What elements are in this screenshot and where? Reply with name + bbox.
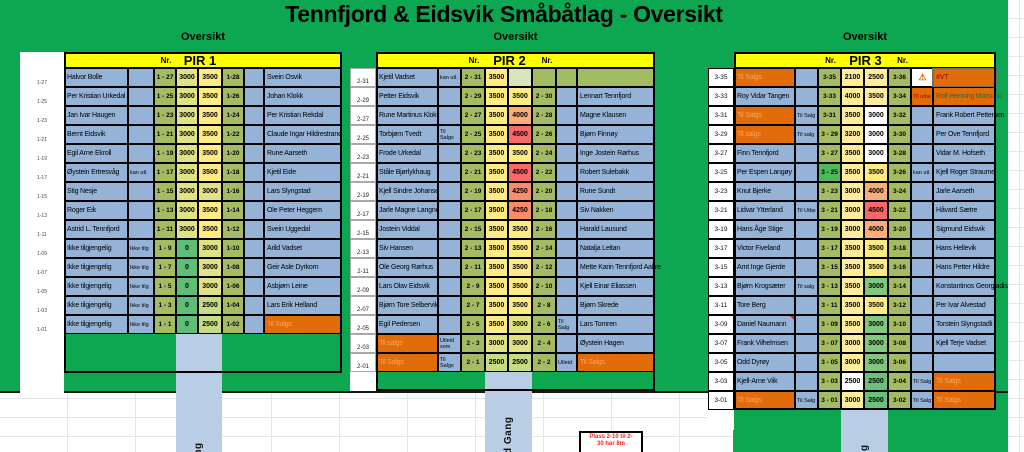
berth-code-right[interactable]: 1-04 xyxy=(222,296,244,315)
owner-name-right[interactable]: Natalja Leitan xyxy=(577,239,655,258)
price-cell-1[interactable]: 3500 xyxy=(485,296,508,315)
status-note-left[interactable] xyxy=(795,163,818,182)
owner-name-left[interactable]: Til Salgs xyxy=(376,353,438,372)
berth-code-right[interactable]: 1-10 xyxy=(222,239,244,258)
berth-code-right[interactable]: 2 - 2 xyxy=(532,353,556,372)
berth-code-left[interactable]: 1 - 17 xyxy=(154,163,176,182)
owner-name-right[interactable]: Per Ivar Alvestad xyxy=(933,296,996,315)
owner-name-right[interactable]: Per Kristian Rekdal xyxy=(264,106,342,125)
price-cell-2[interactable]: 3500 xyxy=(508,87,532,106)
owner-name-right[interactable]: Bjørn Finnøy xyxy=(577,125,655,144)
price-cell-1[interactable]: 3500 xyxy=(841,163,864,182)
berth-code-right[interactable]: 3-06 xyxy=(888,353,911,372)
price-cell-2[interactable]: 4500 xyxy=(508,163,532,182)
owner-name-right[interactable]: Inge Jostein Rørhus xyxy=(577,144,655,163)
owner-name-left[interactable]: Egil Arne Ekroll xyxy=(64,144,128,163)
price-cell-1[interactable]: 0 xyxy=(176,277,198,296)
price-cell-1[interactable]: 3000 xyxy=(176,125,198,144)
price-cell-1[interactable]: 3000 xyxy=(485,334,508,353)
berth-code-right[interactable]: 3-08 xyxy=(888,334,911,353)
berth-code-left[interactable]: 2 - 27 xyxy=(461,106,485,125)
price-cell-1[interactable]: 3000 xyxy=(841,201,864,220)
status-note-left[interactable] xyxy=(128,106,154,125)
status-note-right[interactable]: Til Salg xyxy=(911,372,933,391)
berth-code-right[interactable]: 1-20 xyxy=(222,144,244,163)
status-note-left[interactable] xyxy=(795,296,818,315)
berth-code-left[interactable]: 1 - 13 xyxy=(154,201,176,220)
berth-code-right[interactable]: 3-22 xyxy=(888,201,911,220)
owner-name-left[interactable]: Rune Martinus Klokseth xyxy=(376,106,438,125)
price-cell-2[interactable]: 3500 xyxy=(198,106,222,125)
owner-name-right[interactable]: Robert Sulebakk xyxy=(577,163,655,182)
price-cell-2[interactable]: 3500 xyxy=(198,87,222,106)
owner-name-left[interactable]: Kjetil Vadset xyxy=(376,68,438,87)
status-note-left[interactable] xyxy=(128,87,154,106)
berth-code-right[interactable]: 3-14 xyxy=(888,277,911,296)
price-cell-2[interactable]: 3500 xyxy=(198,220,222,239)
status-note-right[interactable] xyxy=(556,277,577,296)
owner-name-left[interactable]: Bjørn Krogsæter xyxy=(734,277,795,296)
owner-name-right[interactable]: Kjetil Eide xyxy=(264,163,342,182)
owner-name-left[interactable]: Astrid L. Tennfjord xyxy=(64,220,128,239)
warning-icon[interactable]: ⚠ xyxy=(918,73,926,82)
price-cell-2[interactable]: 3000 xyxy=(198,182,222,201)
price-cell-2[interactable]: 2500 xyxy=(864,391,888,410)
berth-code-right[interactable]: 2 - 8 xyxy=(532,296,556,315)
status-note-right[interactable] xyxy=(556,144,577,163)
price-cell-2[interactable]: 3000 xyxy=(864,125,888,144)
price-cell-1[interactable]: 3500 xyxy=(841,144,864,163)
status-note-right[interactable] xyxy=(244,163,264,182)
price-cell-1[interactable]: 3500 xyxy=(485,239,508,258)
status-note-right[interactable] xyxy=(556,334,577,353)
price-cell-2[interactable]: 2500 xyxy=(864,372,888,391)
berth-code-right[interactable]: 1-22 xyxy=(222,125,244,144)
price-cell-1[interactable]: 4000 xyxy=(841,87,864,106)
berth-code-right[interactable]: 3-30 xyxy=(888,125,911,144)
status-note-right[interactable]: ⚠ xyxy=(911,68,933,87)
berth-code-left[interactable]: 1 - 25 xyxy=(154,87,176,106)
berth-code-right[interactable]: 3-02 xyxy=(888,391,911,410)
owner-name-right[interactable]: Bjørn Skrede xyxy=(577,296,655,315)
status-note-right[interactable] xyxy=(911,220,933,239)
berth-code-left[interactable]: 3 - 15 xyxy=(818,258,841,277)
owner-name-right[interactable]: Lars Slyngstad xyxy=(264,182,342,201)
price-cell-2[interactable]: 4500 xyxy=(508,125,532,144)
berth-code-left[interactable]: 1 - 9 xyxy=(154,239,176,258)
berth-code-left[interactable]: 1 - 5 xyxy=(154,277,176,296)
berth-code-left[interactable]: 3 - 05 xyxy=(818,353,841,372)
berth-code-left[interactable]: 2 - 3 xyxy=(461,334,485,353)
status-note-left[interactable] xyxy=(795,239,818,258)
status-note-left[interactable]: Til Salgs xyxy=(438,125,461,144)
owner-name-left[interactable]: Lars Olav Eidsvik xyxy=(376,277,438,296)
status-note-right[interactable] xyxy=(911,353,933,372)
price-cell-2[interactable]: 3500 xyxy=(508,239,532,258)
berth-code-right[interactable]: 1-02 xyxy=(222,315,244,334)
price-cell-1[interactable]: 3000 xyxy=(841,220,864,239)
status-note-right[interactable] xyxy=(911,296,933,315)
price-cell-1[interactable]: 3000 xyxy=(176,144,198,163)
berth-code-left[interactable]: 1 - 3 xyxy=(154,296,176,315)
price-cell-2[interactable]: 3500 xyxy=(508,144,532,163)
price-cell-1[interactable]: 2100 xyxy=(841,68,864,87)
price-cell-2[interactable]: 3000 xyxy=(508,315,532,334)
berth-code-left[interactable]: 2 - 19 xyxy=(461,182,485,201)
price-cell-1[interactable]: 3500 xyxy=(841,315,864,334)
price-cell-1[interactable]: 3000 xyxy=(176,87,198,106)
berth-code-right[interactable]: 1-18 xyxy=(222,163,244,182)
price-cell-2[interactable]: 3500 xyxy=(198,144,222,163)
price-cell-2[interactable]: 4250 xyxy=(508,182,532,201)
status-note-left[interactable] xyxy=(795,182,818,201)
price-cell-2[interactable]: 3000 xyxy=(198,258,222,277)
owner-name-right[interactable]: Til Salgs xyxy=(933,391,996,410)
status-note-right[interactable] xyxy=(556,182,577,201)
price-cell-2[interactable]: 3000 xyxy=(198,277,222,296)
owner-name-right[interactable]: Ole Peter Heggem xyxy=(264,201,342,220)
berth-code-right[interactable]: 2 - 10 xyxy=(532,277,556,296)
berth-code-right[interactable]: 3-24 xyxy=(888,182,911,201)
price-cell-2[interactable]: 3000 xyxy=(864,144,888,163)
berth-code-right[interactable] xyxy=(532,68,556,87)
berth-code-right[interactable]: 3-12 xyxy=(888,296,911,315)
status-note-left[interactable]: Til Salgs xyxy=(438,353,461,372)
status-note-left[interactable]: Ikke tilg xyxy=(128,277,154,296)
owner-name-left[interactable]: Ikke tilgjengelig xyxy=(64,277,128,296)
price-cell-1[interactable]: 3500 xyxy=(485,315,508,334)
owner-name-left[interactable]: Arnt Inge Gjerde xyxy=(734,258,795,277)
status-note-left[interactable] xyxy=(438,87,461,106)
owner-name-left[interactable]: Halvor Bolle xyxy=(64,68,128,87)
price-cell-1[interactable]: 3500 xyxy=(485,182,508,201)
price-cell-1[interactable]: 3500 xyxy=(485,258,508,277)
berth-code-right[interactable]: 3-04 xyxy=(888,372,911,391)
status-note-right[interactable] xyxy=(911,182,933,201)
status-note-right[interactable]: kan utl. xyxy=(911,163,933,182)
price-cell-2[interactable]: 3000 xyxy=(864,106,888,125)
owner-name-right[interactable]: Siv Nakken xyxy=(577,201,655,220)
berth-code-right[interactable]: 3-32 xyxy=(888,106,911,125)
status-note-left[interactable] xyxy=(438,201,461,220)
price-cell-1[interactable]: 2500 xyxy=(485,353,508,372)
price-cell-2[interactable]: 3500 xyxy=(864,258,888,277)
berth-code-left[interactable]: 1 - 23 xyxy=(154,106,176,125)
price-cell-1[interactable]: 3000 xyxy=(176,220,198,239)
price-cell-1[interactable]: 3000 xyxy=(176,68,198,87)
price-cell-2[interactable]: 3000 xyxy=(864,277,888,296)
owner-name-right[interactable]: Magne Klausen xyxy=(577,106,655,125)
price-cell-2[interactable]: 3500 xyxy=(508,220,532,239)
berth-code-left[interactable]: 1 - 15 xyxy=(154,182,176,201)
status-note-left[interactable]: Ikke tilg xyxy=(128,296,154,315)
owner-name-left[interactable]: Per Kristian Urkedal xyxy=(64,87,128,106)
price-cell-2[interactable]: 3000 xyxy=(198,239,222,258)
berth-code-left[interactable]: 1 - 27 xyxy=(154,68,176,87)
status-note-right[interactable] xyxy=(556,296,577,315)
berth-code-right[interactable]: 3-16 xyxy=(888,258,911,277)
berth-code-right[interactable]: 1-12 xyxy=(222,220,244,239)
price-cell-1[interactable]: 3000 xyxy=(841,391,864,410)
status-note-right[interactable] xyxy=(556,125,577,144)
berth-code-left[interactable]: 1 - 19 xyxy=(154,144,176,163)
price-cell-2[interactable]: 4000 xyxy=(864,182,888,201)
berth-code-right[interactable]: 2 - 6 xyxy=(532,315,556,334)
berth-code-left[interactable]: 2 - 11 xyxy=(461,258,485,277)
status-note-right[interactable]: Utleid xyxy=(556,353,577,372)
berth-code-left[interactable]: 3 - 25 xyxy=(818,163,841,182)
status-note-right[interactable] xyxy=(244,220,264,239)
owner-name-right[interactable]: Sigmund Eidsvik xyxy=(933,220,996,239)
owner-name-left[interactable]: Frode Urkedal xyxy=(376,144,438,163)
price-cell-2[interactable] xyxy=(508,68,532,87)
status-note-left[interactable]: Ikke tilg xyxy=(128,315,154,334)
status-note-left[interactable]: Til salg xyxy=(795,277,818,296)
owner-name-left[interactable]: Per Espen Langøy xyxy=(734,163,795,182)
owner-name-right[interactable]: Arild Vadset xyxy=(264,239,342,258)
price-cell-1[interactable]: 0 xyxy=(176,239,198,258)
price-cell-2[interactable]: 3500 xyxy=(864,163,888,182)
status-note-right[interactable] xyxy=(911,334,933,353)
owner-name-left[interactable]: Bjørn Tore Selbervik xyxy=(376,296,438,315)
status-note-left[interactable] xyxy=(438,239,461,258)
status-note-right[interactable] xyxy=(244,239,264,258)
status-note-right[interactable] xyxy=(911,125,933,144)
berth-code-left[interactable]: 3-31 xyxy=(818,106,841,125)
price-cell-1[interactable]: 3000 xyxy=(176,163,198,182)
berth-code-right[interactable]: 2 - 24 xyxy=(532,144,556,163)
owner-name-right[interactable]: Til Salgs xyxy=(933,372,996,391)
berth-code-right[interactable]: 1-28 xyxy=(222,68,244,87)
berth-code-left[interactable]: 3 - 03 xyxy=(818,372,841,391)
price-cell-2[interactable]: 2500 xyxy=(198,315,222,334)
owner-name-right[interactable]: Harald Lausund xyxy=(577,220,655,239)
status-note-left[interactable] xyxy=(438,182,461,201)
price-cell-2[interactable]: 3500 xyxy=(508,258,532,277)
status-note-left[interactable]: Til Salg xyxy=(795,391,818,410)
price-cell-1[interactable]: 3500 xyxy=(841,258,864,277)
owner-name-left[interactable]: Øystein Ertresvåg xyxy=(64,163,128,182)
price-cell-1[interactable]: 3500 xyxy=(841,277,864,296)
berth-code-right[interactable]: 2 - 28 xyxy=(532,106,556,125)
owner-name-right[interactable]: Konstantinos Georgiadis xyxy=(933,277,996,296)
status-note-right[interactable] xyxy=(911,239,933,258)
price-cell-1[interactable]: 3500 xyxy=(841,239,864,258)
status-note-right[interactable] xyxy=(556,239,577,258)
berth-code-left[interactable]: 3 - 07 xyxy=(818,334,841,353)
price-cell-1[interactable]: 3500 xyxy=(485,68,508,87)
owner-name-left[interactable]: Petter Eidsvik xyxy=(376,87,438,106)
price-cell-1[interactable]: 3500 xyxy=(485,125,508,144)
status-note-left[interactable] xyxy=(438,144,461,163)
status-note-right[interactable]: Til utbe xyxy=(911,87,933,106)
berth-code-left[interactable]: 2 - 5 xyxy=(461,315,485,334)
status-note-right[interactable] xyxy=(911,258,933,277)
owner-name-right[interactable]: Claude Ingar Hildrestrand xyxy=(264,125,342,144)
price-cell-1[interactable]: 3000 xyxy=(841,353,864,372)
owner-name-left[interactable]: Ikke tilgjengelig xyxy=(64,315,128,334)
price-cell-2[interactable]: 2500 xyxy=(198,296,222,315)
berth-code-right[interactable]: 2 - 14 xyxy=(532,239,556,258)
status-note-right[interactable] xyxy=(911,277,933,296)
berth-code-right[interactable]: 1-08 xyxy=(222,258,244,277)
owner-name-right[interactable]: Hans Hellevik xyxy=(933,239,996,258)
owner-name-left[interactable]: Hans Åge Stige xyxy=(734,220,795,239)
status-note-left[interactable]: Ikke tilg xyxy=(128,258,154,277)
status-note-left[interactable] xyxy=(795,334,818,353)
owner-name-right[interactable]: Kjell Roger Straume xyxy=(933,163,996,182)
price-cell-1[interactable]: 3500 xyxy=(485,144,508,163)
owner-name-left[interactable]: Finn Tennfjord xyxy=(734,144,795,163)
owner-name-left[interactable]: Odd Dyrøy xyxy=(734,353,795,372)
berth-code-left[interactable]: 2 - 29 xyxy=(461,87,485,106)
price-cell-2[interactable]: 3500 xyxy=(864,296,888,315)
status-note-right[interactable] xyxy=(244,201,264,220)
berth-code-left[interactable]: 3 - 21 xyxy=(818,201,841,220)
berth-code-left[interactable]: 3 - 11 xyxy=(818,296,841,315)
owner-name-left[interactable]: Knut Bjerke xyxy=(734,182,795,201)
berth-code-right[interactable]: 2 - 30 xyxy=(532,87,556,106)
berth-code-left[interactable]: 2 - 13 xyxy=(461,239,485,258)
price-cell-2[interactable]: 3500 xyxy=(198,201,222,220)
status-note-left[interactable]: Ikke tilg xyxy=(128,239,154,258)
owner-name-left[interactable]: Frank Vilhelmsen xyxy=(734,334,795,353)
berth-code-left[interactable]: 1 - 7 xyxy=(154,258,176,277)
owner-name-right[interactable]: Øystein Hagen xyxy=(577,334,655,353)
status-note-left[interactable]: Til Utbe xyxy=(795,201,818,220)
price-cell-2[interactable]: 3500 xyxy=(864,87,888,106)
berth-code-left[interactable]: 3 - 13 xyxy=(818,277,841,296)
owner-name-left[interactable]: Stig Nesje xyxy=(64,182,128,201)
owner-name-left[interactable]: Tore Berg xyxy=(734,296,795,315)
price-cell-2[interactable]: 4500 xyxy=(864,201,888,220)
status-note-left[interactable] xyxy=(438,220,461,239)
berth-code-right[interactable]: 2 - 12 xyxy=(532,258,556,277)
status-note-left[interactable] xyxy=(128,125,154,144)
owner-name-right[interactable]: Rolf Henning Morsund xyxy=(933,87,996,106)
owner-name-left[interactable]: Jan Ivar Haugen xyxy=(64,106,128,125)
status-note-right[interactable] xyxy=(911,315,933,334)
berth-code-left[interactable]: 2 - 1 xyxy=(461,353,485,372)
owner-name-right[interactable]: Rune Sundt xyxy=(577,182,655,201)
status-note-left[interactable] xyxy=(795,372,818,391)
owner-name-left[interactable]: Til Salgs xyxy=(734,391,795,410)
berth-code-right[interactable]: 1-06 xyxy=(222,277,244,296)
status-note-left[interactable] xyxy=(795,353,818,372)
owner-name-left[interactable]: Roy Vidar Tangen xyxy=(734,87,795,106)
berth-code-right[interactable]: 3-20 xyxy=(888,220,911,239)
status-note-right[interactable] xyxy=(244,277,264,296)
status-note-left[interactable]: kan utl. xyxy=(128,163,154,182)
owner-name-right[interactable]: #VT xyxy=(933,68,996,87)
owner-name-right[interactable]: Håvard Sætre xyxy=(933,201,996,220)
status-note-left[interactable] xyxy=(438,296,461,315)
owner-name-right[interactable]: Johan Klokk xyxy=(264,87,342,106)
berth-code-right[interactable]: 3-26 xyxy=(888,163,911,182)
status-note-right[interactable] xyxy=(244,182,264,201)
status-note-right[interactable] xyxy=(244,106,264,125)
owner-name-left[interactable]: Ikke tilgjengelig xyxy=(64,296,128,315)
status-note-right[interactable] xyxy=(911,106,933,125)
owner-name-left[interactable]: Til salgs xyxy=(734,125,795,144)
status-note-left[interactable] xyxy=(438,163,461,182)
berth-code-right[interactable]: 3-36 xyxy=(888,68,911,87)
owner-name-right[interactable]: Lars Tomren xyxy=(577,315,655,334)
berth-code-right[interactable]: 1-14 xyxy=(222,201,244,220)
owner-name-left[interactable]: Kjell Sindre Johansen xyxy=(376,182,438,201)
price-cell-1[interactable]: 3500 xyxy=(485,201,508,220)
berth-code-left[interactable]: 2 - 7 xyxy=(461,296,485,315)
price-cell-2[interactable]: 4000 xyxy=(864,220,888,239)
price-cell-2[interactable]: 3000 xyxy=(864,315,888,334)
berth-code-right[interactable]: 2 - 4 xyxy=(532,334,556,353)
status-note-left[interactable] xyxy=(438,315,461,334)
owner-name-right[interactable]: Rune Aarseth xyxy=(264,144,342,163)
status-note-left[interactable] xyxy=(795,315,818,334)
berth-code-left[interactable]: 2 - 15 xyxy=(461,220,485,239)
berth-code-right[interactable]: 1-26 xyxy=(222,87,244,106)
status-note-left[interactable] xyxy=(795,87,818,106)
price-cell-2[interactable]: 3000 xyxy=(864,334,888,353)
owner-name-left[interactable]: Victor Fiveland xyxy=(734,239,795,258)
owner-name-right[interactable]: Jarle Aarseth xyxy=(933,182,996,201)
price-cell-1[interactable]: 3500 xyxy=(841,106,864,125)
berth-code-left[interactable]: 1 - 21 xyxy=(154,125,176,144)
price-cell-1[interactable]: 3500 xyxy=(485,163,508,182)
status-note-right[interactable] xyxy=(556,258,577,277)
status-note-right[interactable]: Til Salg xyxy=(556,315,577,334)
owner-name-right[interactable]: Til Salgs xyxy=(264,315,342,334)
price-cell-1[interactable]: 3500 xyxy=(485,277,508,296)
price-cell-1[interactable]: 3000 xyxy=(176,182,198,201)
status-note-right[interactable]: Til Salg xyxy=(911,391,933,410)
berth-code-right[interactable]: 3-28 xyxy=(888,144,911,163)
price-cell-1[interactable]: 3000 xyxy=(176,106,198,125)
owner-name-right[interactable]: Lennart Tennfjord xyxy=(577,87,655,106)
owner-name-left[interactable]: Bernt Eidsvik xyxy=(64,125,128,144)
price-cell-2[interactable]: 3000 xyxy=(864,353,888,372)
owner-name-right[interactable]: Frank Robert Pettersen xyxy=(933,106,996,125)
owner-name-left[interactable]: Lidvar Ytterland xyxy=(734,201,795,220)
owner-name-left[interactable]: Kjell-Arne Viik xyxy=(734,372,795,391)
owner-name-right[interactable]: Kjell Einar Eliassen xyxy=(577,277,655,296)
price-cell-1[interactable]: 2500 xyxy=(841,372,864,391)
berth-code-left[interactable]: 3 - 29 xyxy=(818,125,841,144)
berth-code-left[interactable]: 1 - 11 xyxy=(154,220,176,239)
price-cell-2[interactable]: 3500 xyxy=(508,296,532,315)
owner-name-left[interactable]: Roger Eik xyxy=(64,201,128,220)
price-cell-1[interactable]: 3500 xyxy=(485,220,508,239)
price-cell-2[interactable]: 3500 xyxy=(508,277,532,296)
berth-code-right[interactable]: 2 - 18 xyxy=(532,201,556,220)
owner-name-right[interactable]: Svein Uggedal xyxy=(264,220,342,239)
price-cell-2[interactable]: 2500 xyxy=(864,68,888,87)
status-note-left[interactable] xyxy=(128,201,154,220)
owner-name-left[interactable]: Jostein Viddal xyxy=(376,220,438,239)
status-note-left[interactable] xyxy=(438,258,461,277)
status-note-left[interactable] xyxy=(438,106,461,125)
berth-code-right[interactable]: 2 - 26 xyxy=(532,125,556,144)
owner-name-right[interactable]: Til Salgs xyxy=(577,353,655,372)
owner-name-left[interactable]: Ikke tilgjengelig xyxy=(64,239,128,258)
status-note-left[interactable] xyxy=(128,182,154,201)
berth-code-right[interactable]: 3-34 xyxy=(888,87,911,106)
status-note-right[interactable] xyxy=(911,144,933,163)
price-cell-2[interactable]: 3500 xyxy=(198,125,222,144)
price-cell-1[interactable]: 3500 xyxy=(485,106,508,125)
price-cell-2[interactable]: 3000 xyxy=(508,334,532,353)
price-cell-2[interactable]: 3500 xyxy=(198,68,222,87)
